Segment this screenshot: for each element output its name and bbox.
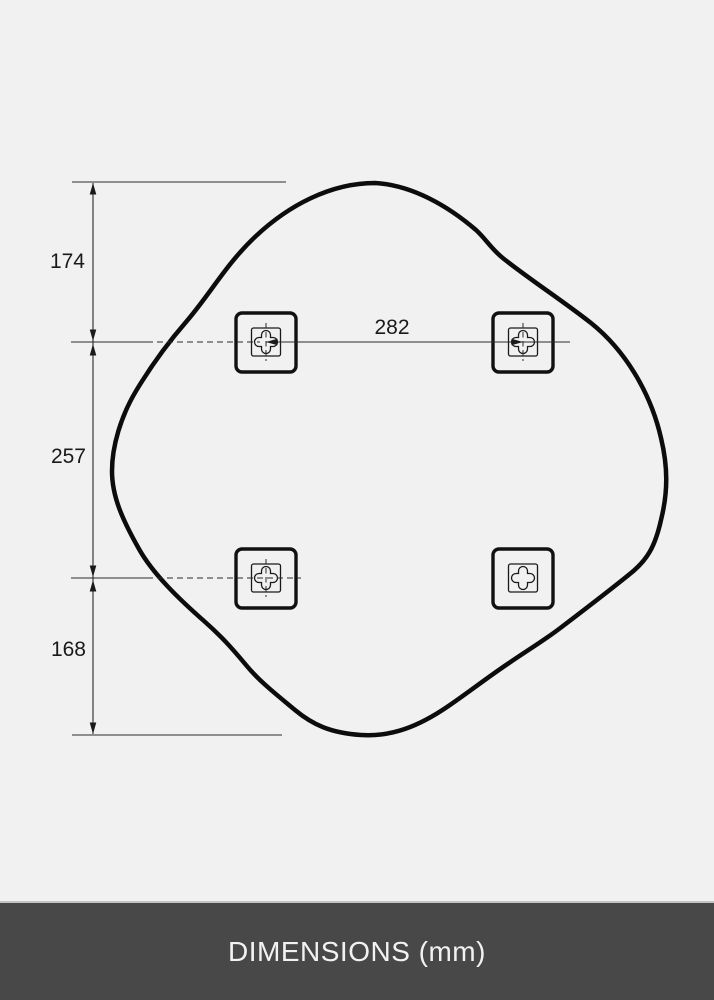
bracket-centerlines <box>266 323 523 597</box>
footer-caption-label: DIMENSIONS (mm) <box>228 936 486 968</box>
mirror-outline <box>112 183 666 735</box>
dimension-sheet: 174 257 168 282 DIMENSIONS (mm) <box>0 0 714 1000</box>
dimension-label-left-middle: 257 <box>51 445 86 468</box>
mirror-dimension-diagram: 174 257 168 282 <box>0 0 714 901</box>
footer-caption-bar: DIMENSIONS (mm) <box>0 901 714 1000</box>
mounting-bracket-bottom-right <box>493 549 553 608</box>
vertical-dimension-line <box>90 183 97 734</box>
dimension-label-left-top: 174 <box>50 250 85 273</box>
dimension-label-bracket-spacing: 282 <box>374 316 409 339</box>
diagram-area: 174 257 168 282 <box>0 0 714 901</box>
dimension-label-left-bottom: 168 <box>51 638 86 661</box>
reference-lines <box>71 182 301 735</box>
